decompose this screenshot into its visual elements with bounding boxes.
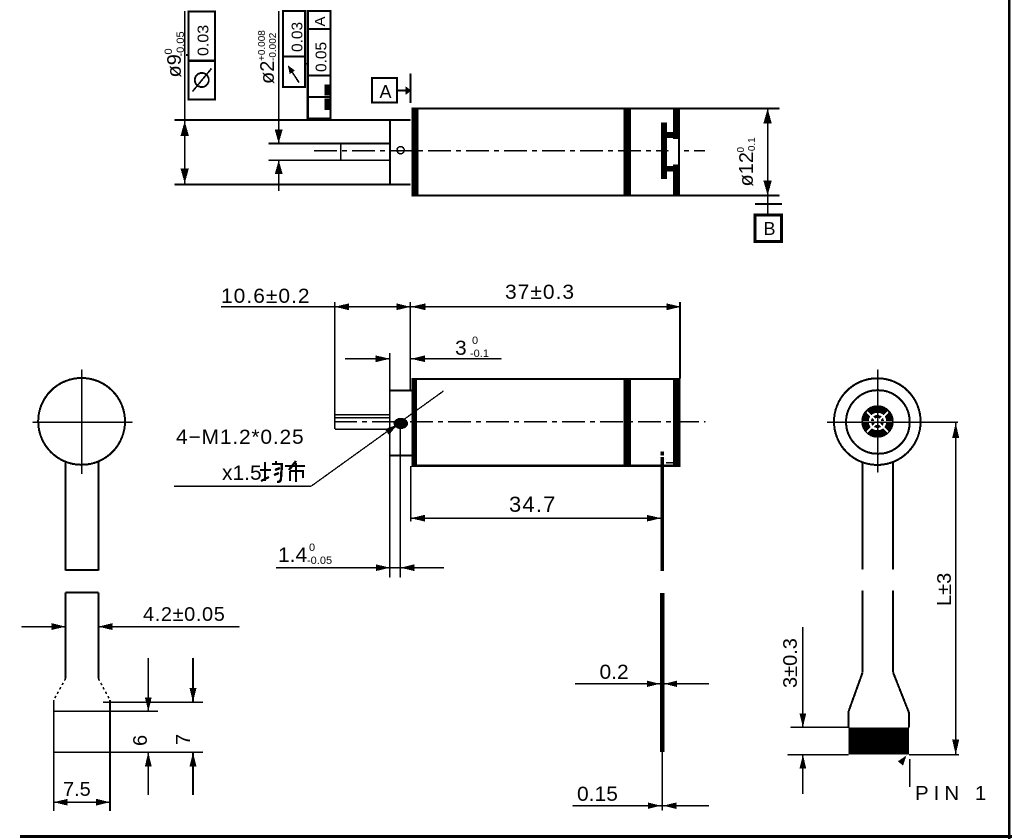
svg-text:L±3: L±3 <box>934 573 956 606</box>
svg-text:0: 0 <box>472 335 478 347</box>
svg-text:-0.002: -0.002 <box>268 32 279 61</box>
svg-text:0.03: 0.03 <box>196 25 213 56</box>
svg-text:-0.05: -0.05 <box>307 555 332 567</box>
svg-text:4−M1.2*0.25: 4−M1.2*0.25 <box>176 426 304 449</box>
svg-text:PIN 1: PIN 1 <box>915 782 991 805</box>
svg-text:ø12: ø12 <box>736 152 758 186</box>
svg-text:3: 3 <box>455 337 467 360</box>
svg-text:0.03: 0.03 <box>290 22 307 52</box>
svg-text:7.5: 7.5 <box>63 779 91 801</box>
svg-text:ø2: ø2 <box>257 61 279 84</box>
svg-text:B: B <box>764 219 776 239</box>
svg-text:-0.05: -0.05 <box>175 31 187 56</box>
svg-text:A: A <box>312 16 329 26</box>
svg-text:0: 0 <box>163 48 175 54</box>
svg-text:-0.1: -0.1 <box>747 137 758 155</box>
svg-text:ø9: ø9 <box>164 54 186 77</box>
svg-text:7: 7 <box>173 734 195 745</box>
svg-text:10.6±0.2: 10.6±0.2 <box>221 285 311 308</box>
svg-text:4.2±0.05: 4.2±0.05 <box>143 604 226 626</box>
svg-text:3±0.3: 3±0.3 <box>780 638 802 688</box>
svg-text:0.2: 0.2 <box>600 661 629 684</box>
svg-text:0: 0 <box>309 542 315 554</box>
svg-text:0.15: 0.15 <box>577 783 618 806</box>
svg-text:1.4: 1.4 <box>278 544 308 567</box>
svg-text:0: 0 <box>736 147 747 153</box>
svg-text:A: A <box>380 82 392 102</box>
svg-text:x1.5: x1.5 <box>222 462 262 485</box>
svg-text:37±0.3: 37±0.3 <box>505 281 575 304</box>
svg-text:0.05: 0.05 <box>314 42 331 72</box>
svg-text:6: 6 <box>130 735 152 746</box>
svg-text:34.7: 34.7 <box>509 492 557 517</box>
svg-text:+0.008: +0.008 <box>257 30 268 61</box>
